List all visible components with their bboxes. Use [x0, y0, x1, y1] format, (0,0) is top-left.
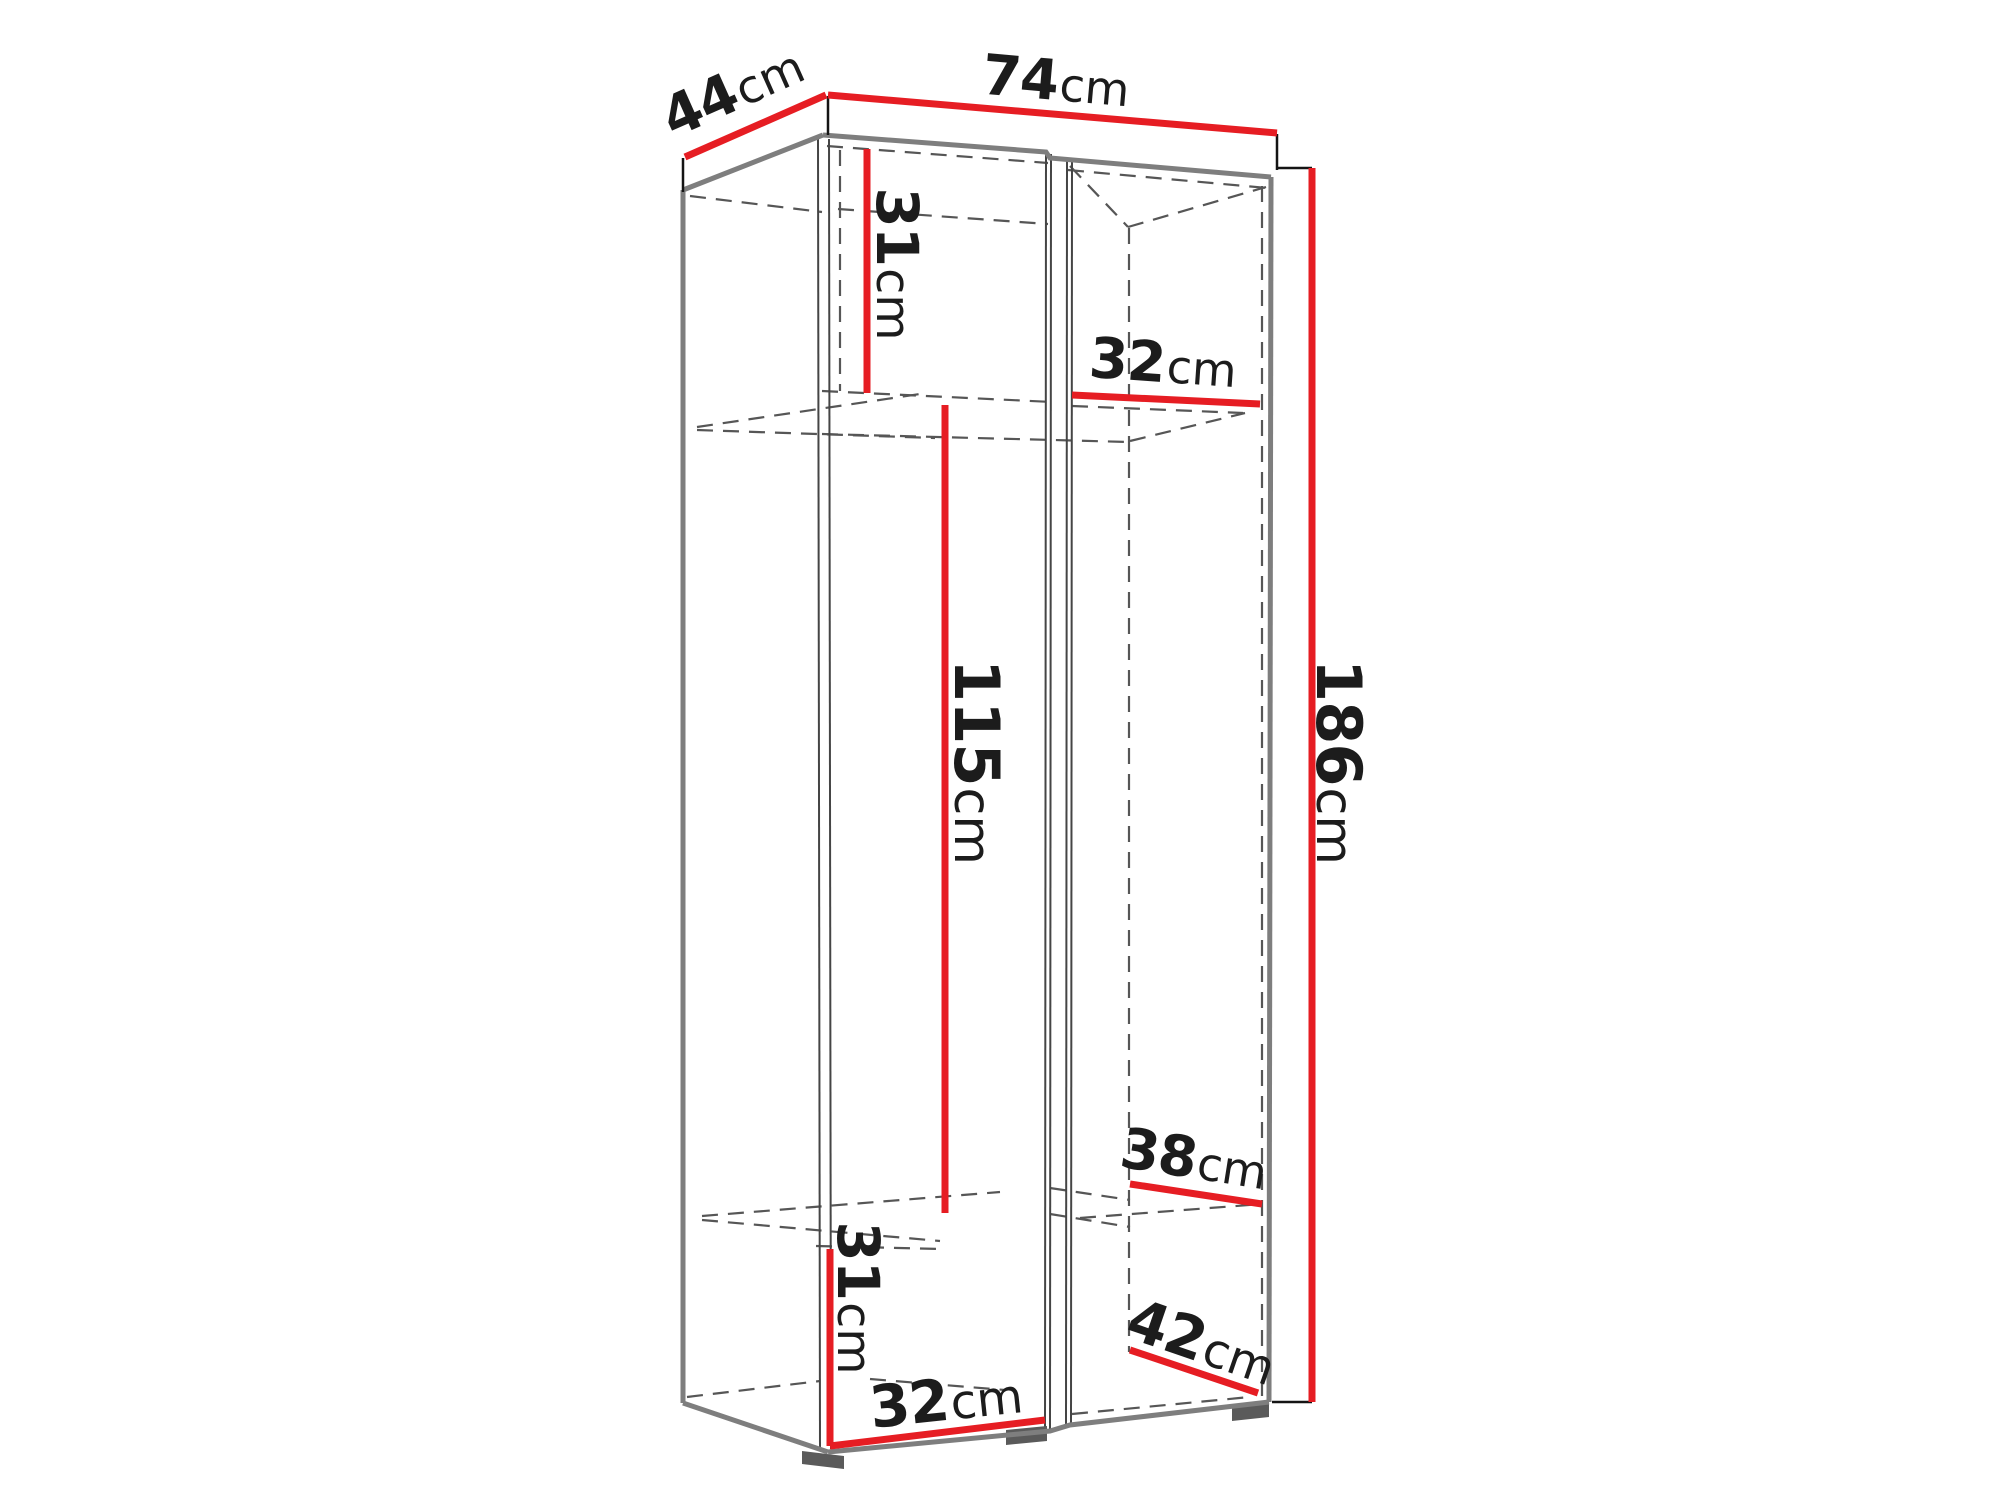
dimension-label-upper-compartment-height: 31cm: [868, 187, 926, 340]
door-gap-left-b: [1050, 154, 1051, 1429]
dimension-label-total-height: 186cm: [1307, 659, 1369, 865]
dimension-label-upper-shelf-width: 32cm: [1087, 331, 1238, 397]
foot-left: [802, 1451, 844, 1469]
dimension-label-lower-compartment-height: 31cm: [829, 1221, 887, 1374]
door-gap-right-b: [1071, 159, 1072, 1426]
side-top-edge: [683, 135, 823, 190]
front-right-edge: [1269, 177, 1271, 1402]
door-gap-left-a: [1045, 153, 1046, 1428]
wardrobe-dimension-diagram: 44cm 74cm 31cm 32cm 115cm 186cm 38cm 31c…: [0, 0, 2000, 1500]
dimension-label-middle-section-height: 115cm: [945, 659, 1007, 865]
door-gap-right-a: [1066, 158, 1067, 1426]
dimension-label-lower-shelf-width: 32cm: [867, 1363, 1025, 1437]
side-bottom-edge: [683, 1403, 828, 1452]
left-door-edge: [818, 138, 820, 1450]
dimension-label-width-top: 74cm: [980, 48, 1132, 117]
front-top-edge: [823, 135, 1271, 177]
